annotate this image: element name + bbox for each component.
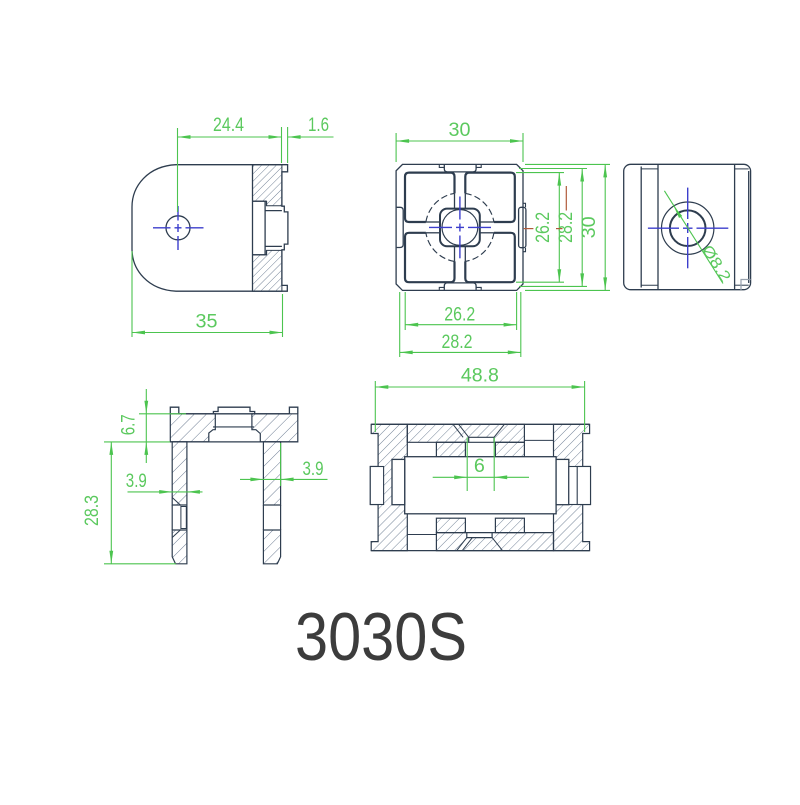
svg-text:35: 35 xyxy=(196,312,218,333)
svg-text:6.7: 6.7 xyxy=(119,414,140,435)
svg-text:30: 30 xyxy=(449,120,471,141)
svg-text:6: 6 xyxy=(474,456,485,477)
svg-text:3030S: 3030S xyxy=(295,599,467,675)
svg-text:26.2: 26.2 xyxy=(533,212,554,243)
svg-text:28.3: 28.3 xyxy=(82,495,103,526)
svg-text:26.2: 26.2 xyxy=(444,305,475,326)
svg-text:24.4: 24.4 xyxy=(213,115,244,136)
svg-text:30: 30 xyxy=(579,216,600,238)
svg-text:3.9: 3.9 xyxy=(303,459,324,480)
svg-text:1.6: 1.6 xyxy=(308,115,329,136)
svg-text:3.9: 3.9 xyxy=(126,471,147,492)
svg-text:28.2: 28.2 xyxy=(442,332,473,353)
svg-text:48.8: 48.8 xyxy=(461,366,499,387)
svg-text:28.2: 28.2 xyxy=(556,212,577,243)
